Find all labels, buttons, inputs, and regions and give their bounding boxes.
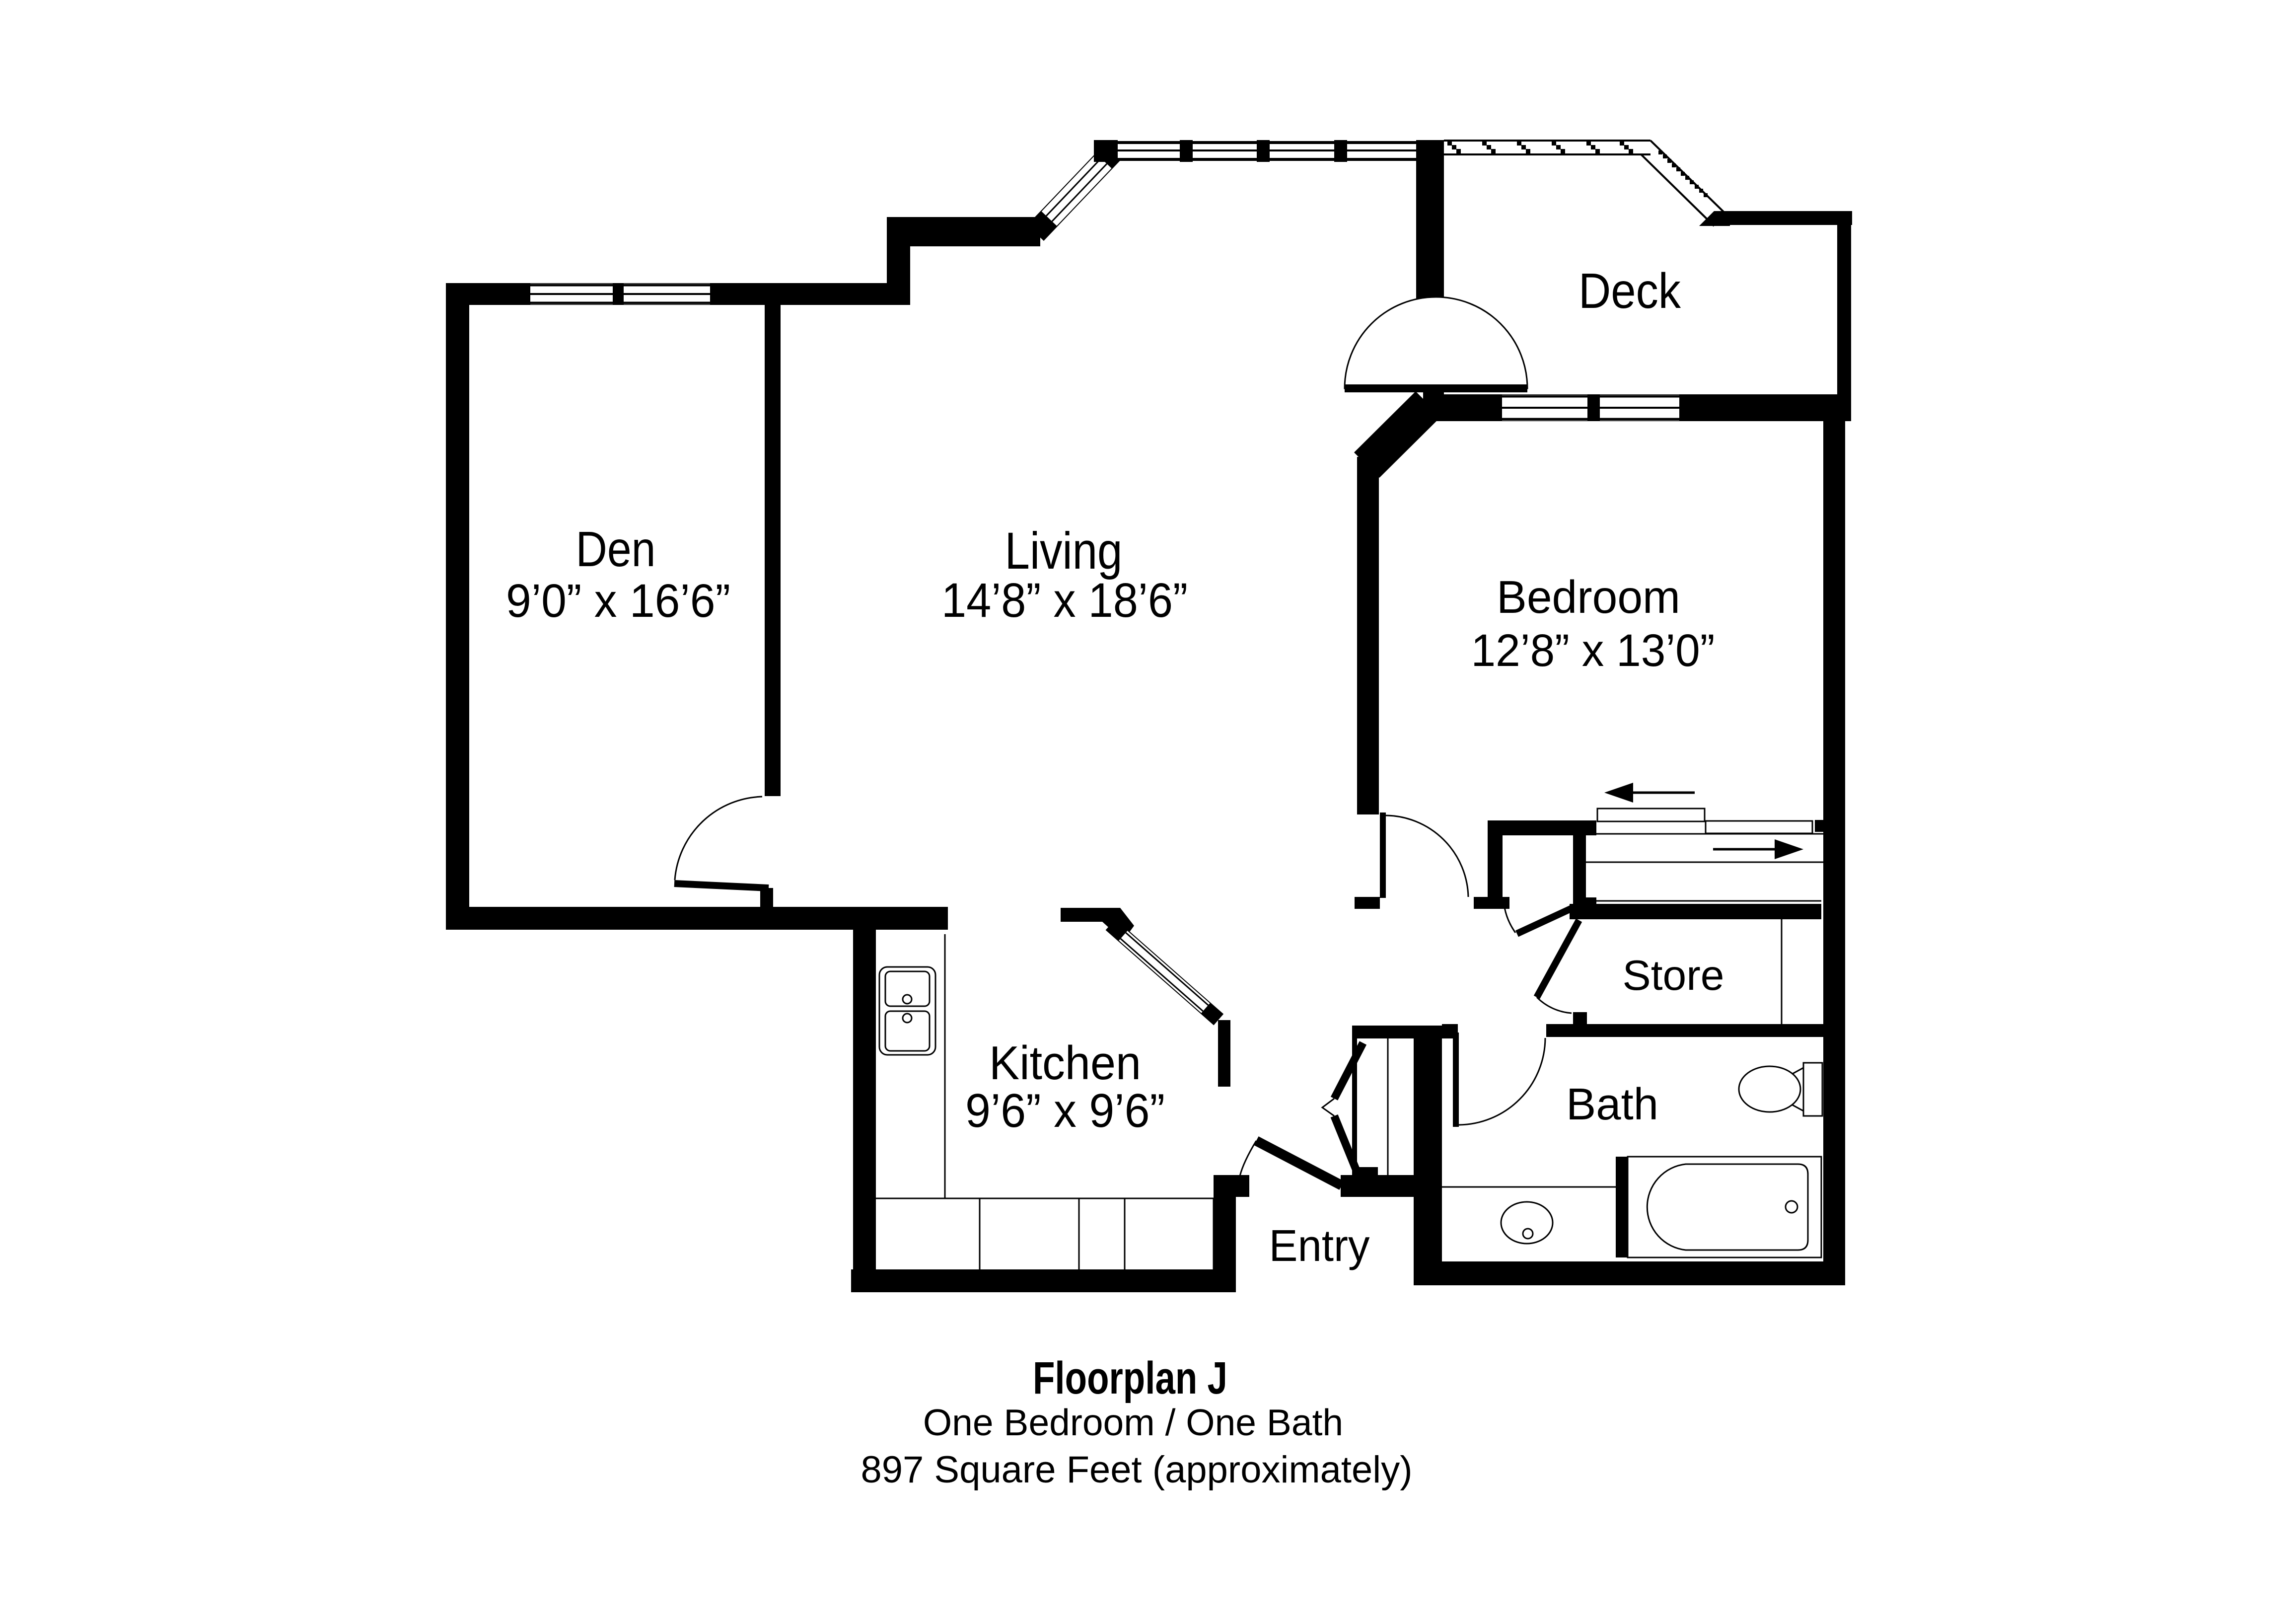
svg-text:897 Square Feet (approximately: 897 Square Feet (approximately): [861, 1449, 1412, 1491]
svg-text:9’6” x 9’6”: 9’6” x 9’6”: [965, 1084, 1165, 1137]
svg-text:Kitchen: Kitchen: [989, 1036, 1141, 1090]
svg-text:14’8” x 18’6”: 14’8” x 18’6”: [941, 573, 1188, 627]
svg-text:Entry: Entry: [1269, 1221, 1370, 1271]
svg-text:Den: Den: [576, 521, 656, 577]
svg-text:Bath: Bath: [1566, 1080, 1658, 1129]
svg-text:Living: Living: [1005, 522, 1123, 580]
svg-text:Store: Store: [1623, 952, 1724, 999]
svg-text:Bedroom: Bedroom: [1497, 571, 1680, 623]
svg-text:One Bedroom / One Bath: One Bedroom / One Bath: [923, 1402, 1343, 1443]
svg-text:Floorplan J: Floorplan J: [1033, 1353, 1227, 1403]
svg-text:12’8” x 13’0”: 12’8” x 13’0”: [1471, 625, 1715, 676]
svg-text:Deck: Deck: [1578, 263, 1681, 319]
svg-text:9’0” x 16’6”: 9’0” x 16’6”: [506, 575, 730, 627]
